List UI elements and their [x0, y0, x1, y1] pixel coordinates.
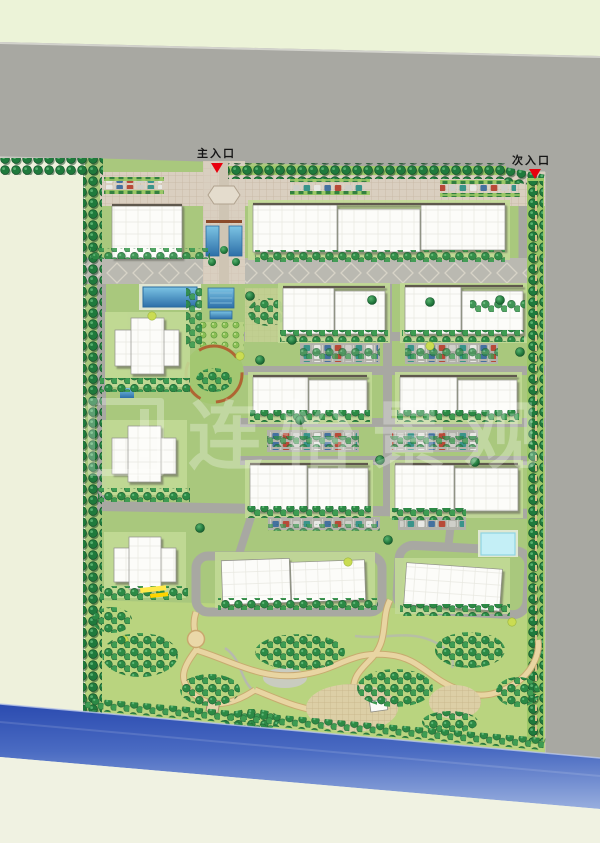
main-entrance-arrow-icon [211, 163, 223, 173]
entrance-axis [203, 161, 245, 284]
secondary-entrance-label: 次入口 [512, 152, 551, 168]
site-plan-canvas: 主入口 次入口 连怡景观 [0, 0, 600, 843]
master-plan-map [0, 0, 600, 843]
secondary-entrance-arrow-icon [529, 169, 541, 179]
circular-plaza [184, 344, 244, 404]
axis-water-channel [208, 288, 234, 319]
cyan-pool [478, 530, 518, 557]
main-entrance-label: 主入口 [197, 145, 236, 161]
